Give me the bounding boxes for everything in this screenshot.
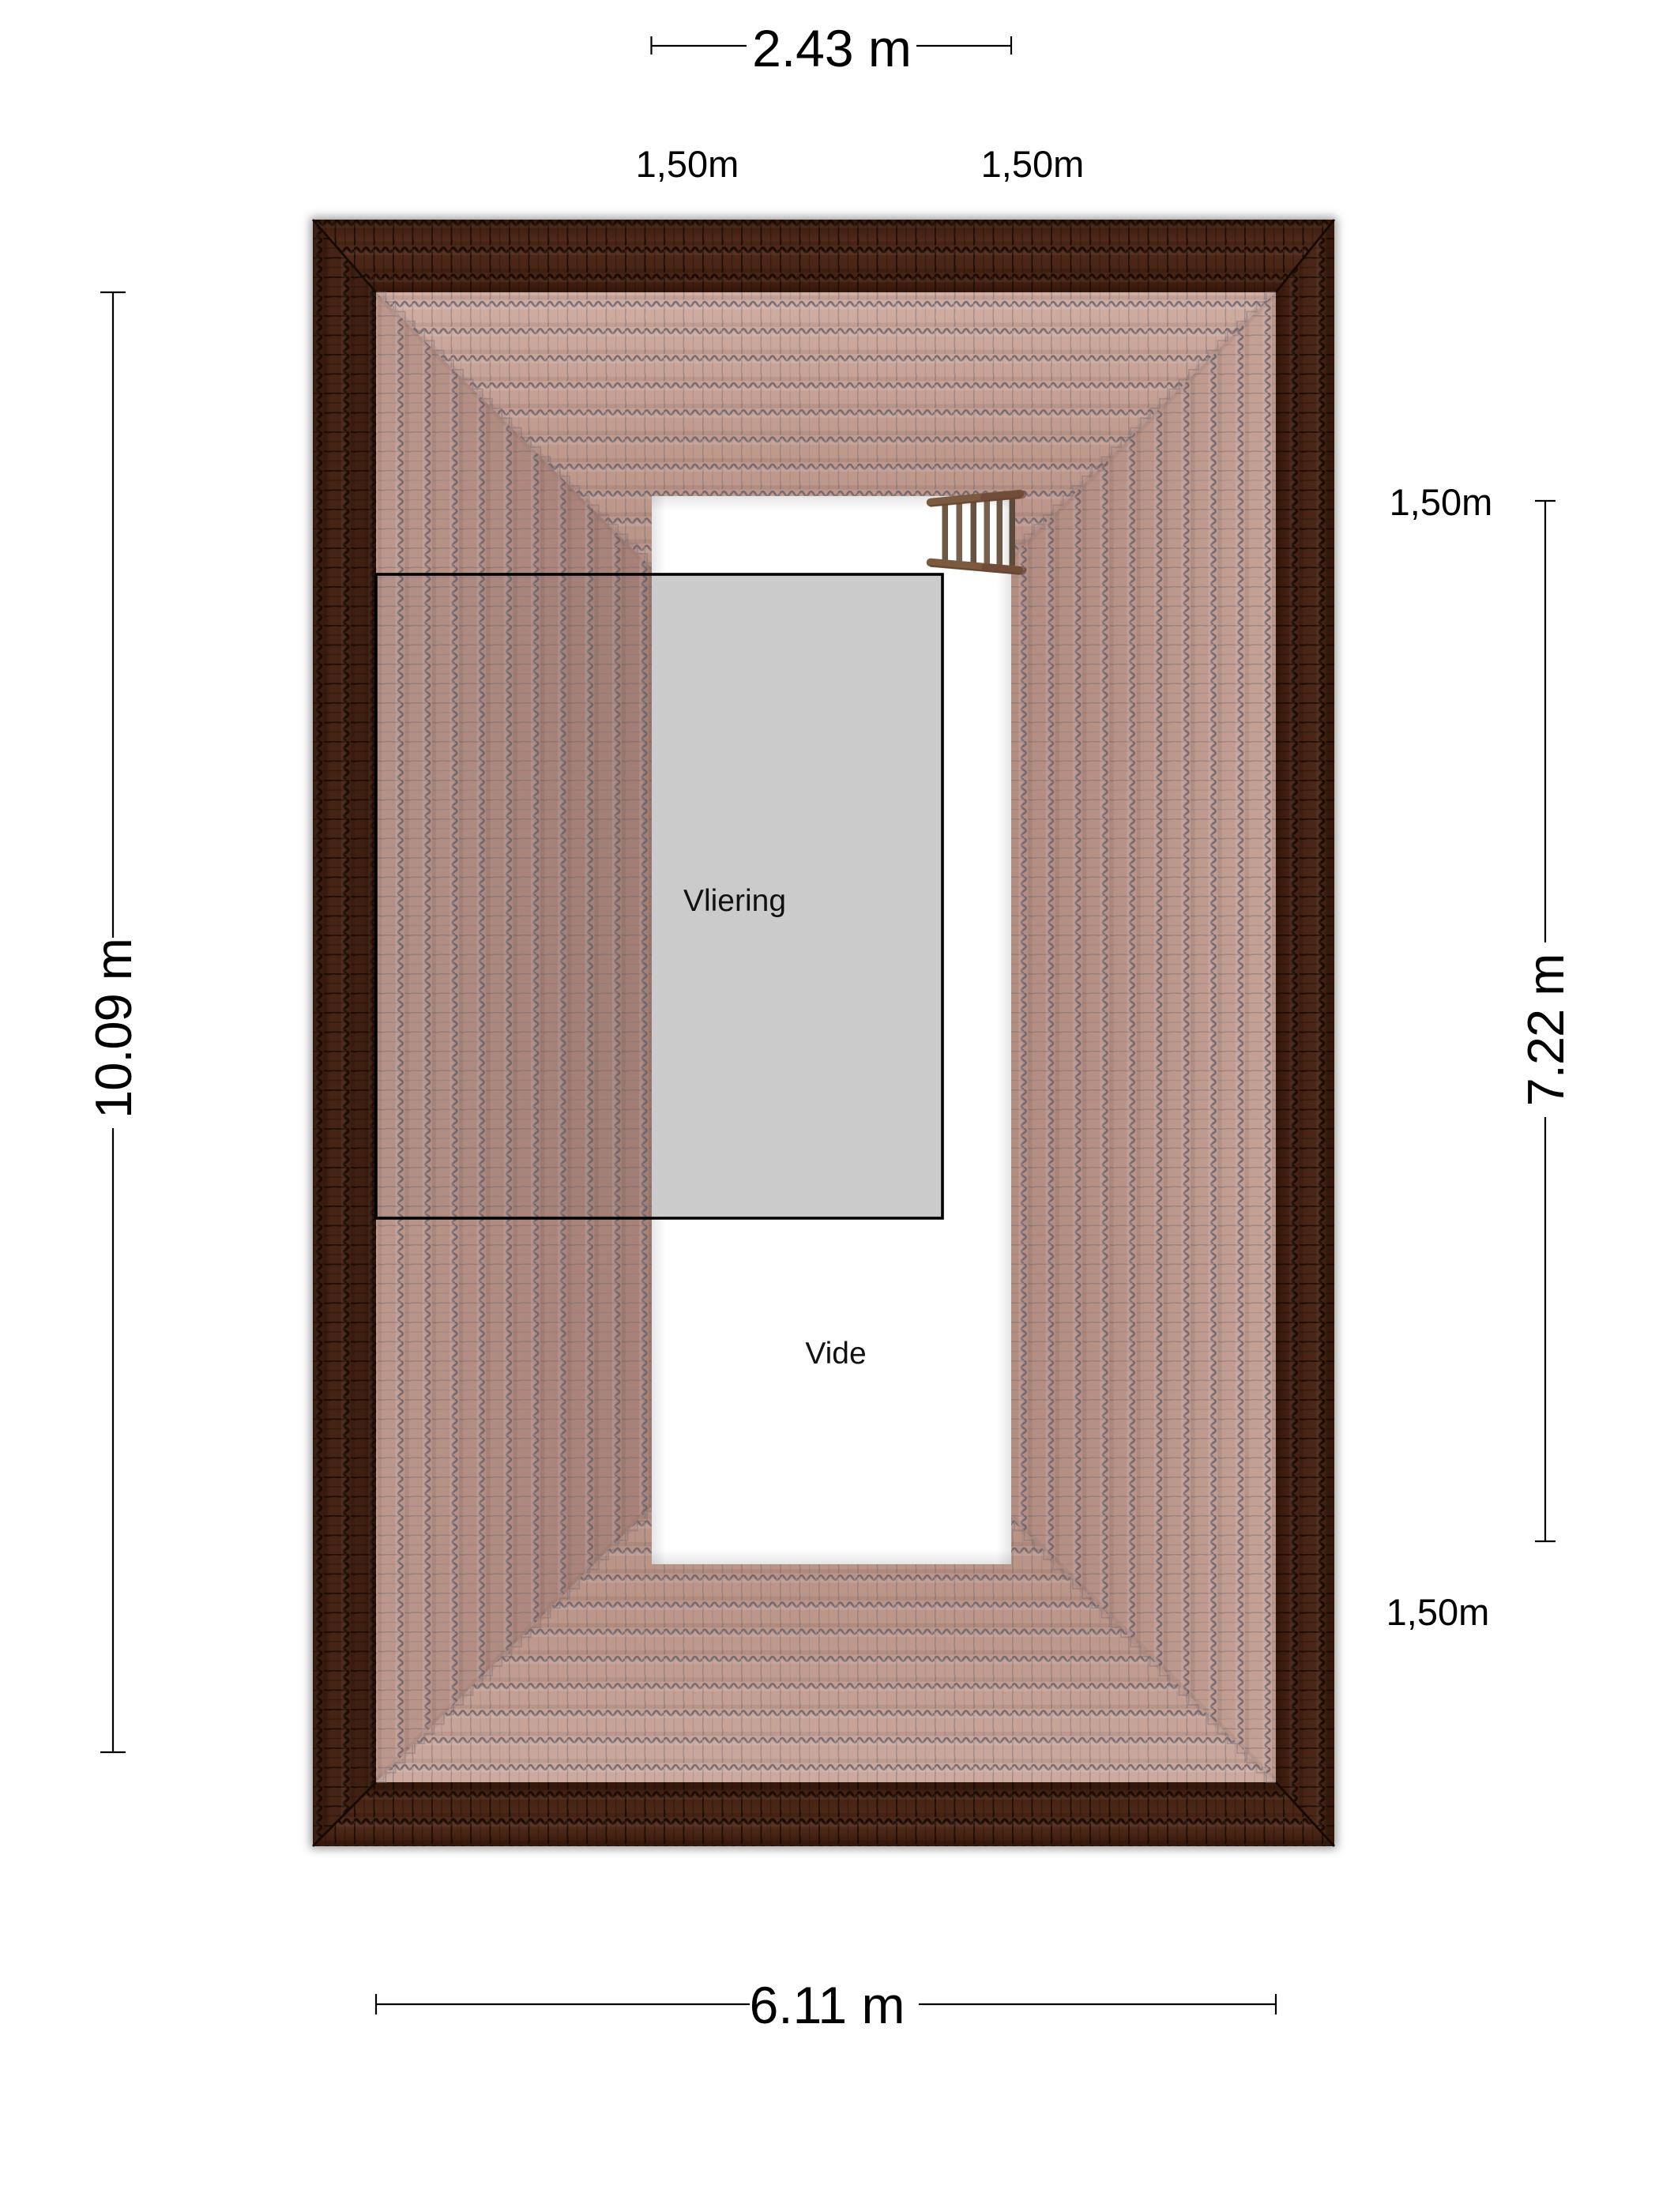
svg-text:1,50m: 1,50m (1390, 481, 1493, 523)
svg-text:Vliering: Vliering (683, 884, 786, 918)
svg-text:1,50m: 1,50m (636, 143, 739, 185)
svg-text:1,50m: 1,50m (1386, 1591, 1490, 1633)
svg-text:1,50m: 1,50m (981, 143, 1085, 185)
svg-text:6.11 m: 6.11 m (750, 1976, 905, 2034)
svg-text:7.22 m: 7.22 m (1517, 954, 1574, 1107)
svg-text:10.09 m: 10.09 m (85, 939, 142, 1119)
svg-text:2.43 m: 2.43 m (752, 19, 912, 77)
svg-text:Vide: Vide (805, 1337, 866, 1371)
